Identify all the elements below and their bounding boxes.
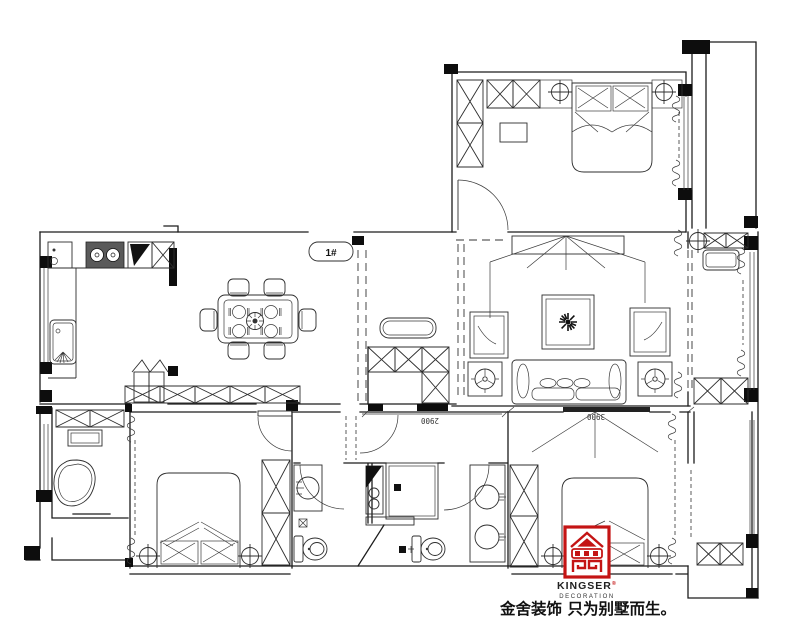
living-room — [468, 230, 682, 404]
folding-door — [132, 360, 168, 402]
downlight-icon — [471, 369, 499, 393]
hallway-storage — [368, 318, 449, 404]
ceiling-light-icon — [238, 544, 262, 568]
door-arc — [258, 411, 292, 451]
bedroom-left — [136, 411, 292, 568]
door-arc — [458, 180, 508, 230]
centerpiece — [247, 313, 264, 330]
ceiling-light-icon — [541, 544, 565, 568]
curtain-icon — [674, 372, 682, 398]
side-table-right — [638, 362, 672, 396]
toilet-icon — [294, 536, 327, 562]
curtain-icon — [668, 538, 676, 564]
curtain-icon — [672, 160, 680, 186]
side-table — [500, 123, 527, 142]
curtain-icon — [737, 350, 745, 376]
tv-cabinet — [512, 236, 624, 254]
curtain-icon — [668, 414, 676, 440]
wardrobe-icon — [457, 80, 540, 167]
dining-room — [125, 279, 316, 403]
dimension-label: 2900 — [420, 416, 439, 425]
curtain-icon — [674, 230, 682, 256]
curtain-icon — [127, 416, 135, 442]
floor-plan-drawing: 2900 3900 1# KINGSER® DECORATION 金舍装饰 只为… — [0, 0, 800, 640]
fridge-icon — [128, 242, 174, 268]
side-table-left — [468, 362, 502, 396]
threshold — [366, 517, 414, 525]
bathroom-right — [412, 465, 506, 562]
openings — [135, 112, 743, 540]
balcony-bottom-right — [697, 543, 743, 565]
double-vanity — [470, 465, 506, 562]
kingser-logo-icon — [565, 527, 609, 577]
armchair-right — [630, 308, 670, 356]
door-arc — [444, 465, 489, 510]
wardrobe-icon — [262, 460, 290, 565]
downlight-icon — [641, 369, 669, 393]
brand-logo: KINGSER® DECORATION — [557, 527, 617, 600]
slogan-text: 金舍装饰 只为别墅而生。 — [499, 599, 676, 618]
master-bedroom — [457, 80, 682, 230]
hall-cabinet-icon — [125, 386, 300, 403]
kitchen — [48, 242, 174, 402]
study-room — [54, 410, 135, 564]
chandelier-icon — [559, 313, 577, 331]
floorplan-page: 2900 3900 1# KINGSER® DECORATION 金舍装饰 只为… — [0, 0, 800, 640]
bathroom-left — [294, 465, 344, 562]
dimensions: 2900 3900 — [360, 407, 694, 453]
entry-label: 1# — [325, 248, 337, 259]
vanity-sink — [294, 465, 322, 511]
bed-icon — [157, 473, 240, 568]
sofa-icon — [512, 360, 626, 404]
shower-icon — [386, 463, 438, 519]
windows — [44, 96, 754, 534]
balcony-right — [686, 229, 748, 404]
bed-icon — [572, 83, 652, 172]
ceiling-light-icon — [647, 544, 671, 568]
dining-table — [218, 295, 298, 343]
entry-marker: 1# — [309, 242, 353, 261]
laundry-sink — [703, 250, 739, 270]
bench — [380, 318, 436, 338]
ceiling-light-icon — [548, 80, 572, 104]
ceiling-light-icon — [652, 80, 676, 104]
brand-name: KINGSER® — [557, 580, 617, 592]
floor-drain-icon — [299, 519, 307, 527]
shower-room — [358, 463, 438, 566]
ceiling-light-icon — [136, 544, 160, 568]
lounge-chair-icon — [54, 460, 95, 506]
wardrobe-icon — [510, 465, 538, 567]
armchair-left — [470, 312, 508, 358]
bench — [68, 430, 102, 446]
curtain-icon — [672, 96, 680, 122]
sink-icon — [50, 320, 76, 364]
dining-chairs — [200, 279, 316, 359]
tv-icon — [563, 407, 650, 412]
toilet-icon — [412, 536, 445, 562]
stove-icon — [86, 242, 124, 268]
dimension-label: 3900 — [586, 412, 605, 421]
